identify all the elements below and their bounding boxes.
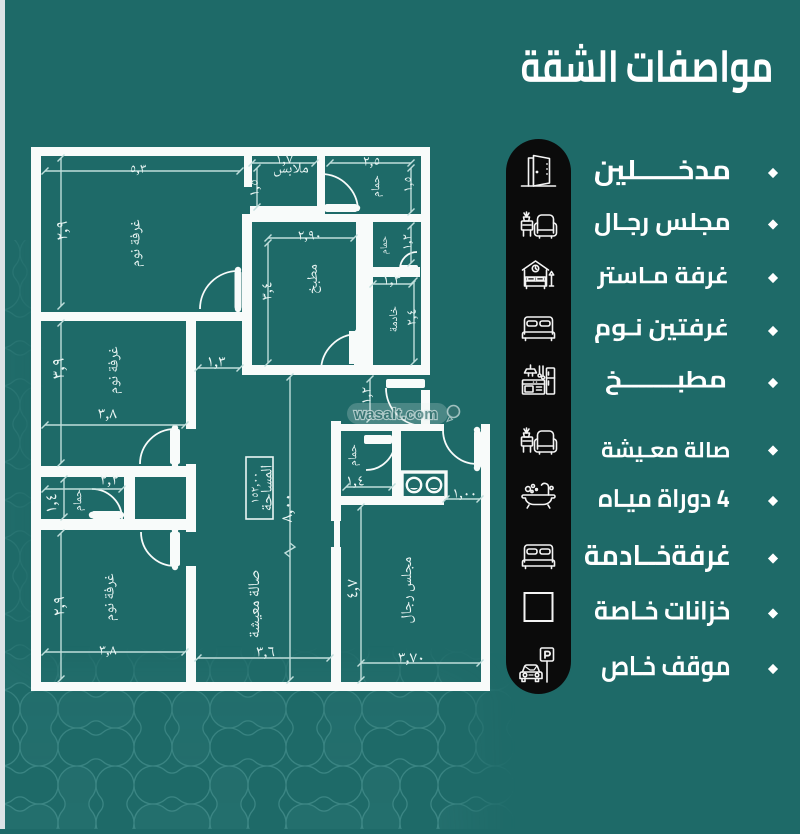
svg-text:wasalt.com: wasalt.com bbox=[353, 406, 438, 423]
